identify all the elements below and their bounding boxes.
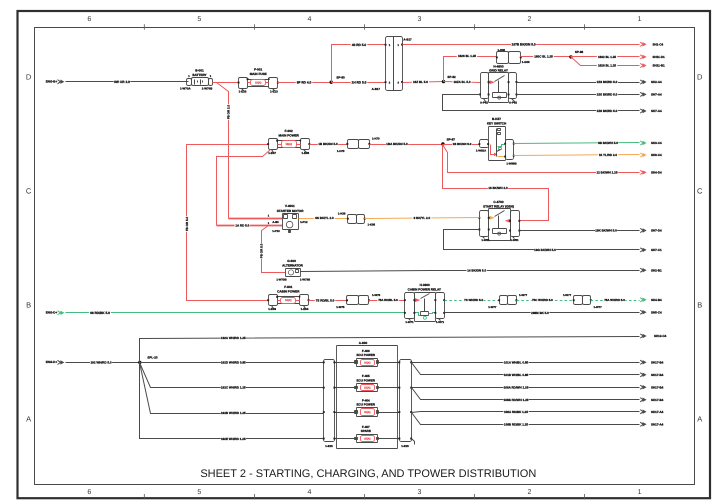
svg-text:SH17-B4: SH17-B4 bbox=[651, 385, 664, 389]
svg-text:192E WH/RD 1.25: 192E WH/RD 1.25 bbox=[221, 437, 246, 441]
svg-text:1-H30: 1-H30 bbox=[498, 48, 506, 52]
svg-text:1-K96: 1-K96 bbox=[338, 211, 346, 215]
svg-text:1H RD 5.0: 1H RD 5.0 bbox=[352, 80, 367, 84]
svg-text:15(A): 15(A) bbox=[364, 437, 370, 440]
svg-text:14 BK/GN 5.0: 14 BK/GN 5.0 bbox=[467, 269, 486, 273]
svg-text:ECU POWER: ECU POWER bbox=[357, 353, 376, 357]
svg-text:MAIN FUSE: MAIN FUSE bbox=[250, 72, 267, 76]
svg-text:3: 3 bbox=[417, 489, 421, 496]
svg-text:1-E13: 1-E13 bbox=[270, 90, 278, 94]
svg-text:1B BK/GN 5.0: 1B BK/GN 5.0 bbox=[318, 142, 338, 146]
svg-text:B-001: B-001 bbox=[195, 68, 204, 72]
svg-text:1E3 BK/RD 5.0: 1E3 BK/RD 5.0 bbox=[597, 80, 618, 84]
svg-text:6: 6 bbox=[87, 489, 91, 496]
svg-text:1-W70A: 1-W70A bbox=[180, 87, 192, 91]
svg-text:1-W77: 1-W77 bbox=[488, 305, 497, 309]
svg-text:SH7-A4: SH7-A4 bbox=[651, 93, 662, 97]
svg-text:192B WH/RD 1.25: 192B WH/RD 1.25 bbox=[221, 411, 246, 415]
svg-text:1-W73B: 1-W73B bbox=[276, 277, 286, 281]
svg-text:SH4-B4: SH4-B4 bbox=[651, 298, 662, 302]
svg-text:1-W92A: 1-W92A bbox=[476, 149, 486, 153]
svg-text:B-K57: B-K57 bbox=[492, 117, 501, 121]
svg-text:16Z BL 5.0: 16Z BL 5.0 bbox=[413, 80, 428, 84]
svg-text:101B WH/BL 0.85: 101B WH/BL 0.85 bbox=[504, 373, 529, 377]
svg-text:1: 1 bbox=[397, 44, 399, 47]
svg-text:SP-82: SP-82 bbox=[447, 75, 456, 79]
svg-text:ECU POWER: ECU POWER bbox=[357, 403, 376, 407]
svg-text:1: 1 bbox=[188, 75, 190, 78]
svg-text:D: D bbox=[26, 73, 32, 82]
svg-text:19K BK/WH 5.0: 19K BK/WH 5.0 bbox=[595, 229, 617, 233]
svg-text:1E0 BK/RD 5.0: 1E0 BK/RD 5.0 bbox=[597, 93, 618, 97]
svg-text:1-H70: 1-H70 bbox=[372, 137, 380, 141]
svg-text:15(A): 15(A) bbox=[285, 143, 292, 146]
svg-text:4: 4 bbox=[307, 16, 311, 23]
svg-text:SPARE: SPARE bbox=[361, 429, 371, 433]
svg-text:STARTER MOTOR: STARTER MOTOR bbox=[277, 209, 304, 213]
svg-text:SH9-C4: SH9-C4 bbox=[651, 153, 662, 157]
svg-text:16 BK/WH 2.0: 16 BK/WH 2.0 bbox=[488, 186, 508, 190]
svg-text:G-600: G-600 bbox=[287, 259, 296, 263]
svg-text:1-W51: 1-W51 bbox=[481, 238, 490, 242]
svg-text:9 BK/YL 2.0: 9 BK/YL 2.0 bbox=[414, 216, 431, 220]
svg-text:A-B17: A-B17 bbox=[372, 87, 381, 91]
svg-text:CABIN POWER RELAY: CABIN POWER RELAY bbox=[408, 287, 442, 291]
svg-text:1BA BK/GN 5.0: 1BA BK/GN 5.0 bbox=[386, 142, 408, 146]
svg-text:12 BK/WH 1.25: 12 BK/WH 1.25 bbox=[596, 171, 617, 175]
svg-text:1-H70: 1-H70 bbox=[337, 149, 345, 153]
svg-text:7S WH/RD 5.0: 7S WH/RD 5.0 bbox=[464, 298, 483, 302]
svg-text:1-E05: 1-E05 bbox=[301, 151, 309, 155]
svg-text:F-001: F-001 bbox=[254, 68, 262, 72]
svg-text:106B RD/WH 1.25: 106B RD/WH 1.25 bbox=[504, 398, 529, 402]
svg-text:1-E09: 1-E09 bbox=[268, 307, 276, 311]
svg-text:SH7-A4: SH7-A4 bbox=[651, 109, 662, 113]
svg-text:1E6 BK/RD 5.0: 1E6 BK/RD 5.0 bbox=[597, 109, 618, 113]
svg-text:SP-80: SP-80 bbox=[336, 75, 345, 79]
svg-text:1-E15: 1-E15 bbox=[325, 444, 333, 448]
svg-text:192A WH/RD 1.25: 192A WH/RD 1.25 bbox=[221, 336, 246, 340]
svg-text:15(A): 15(A) bbox=[364, 387, 370, 390]
svg-text:40 RD 5.0: 40 RD 5.0 bbox=[352, 43, 367, 47]
svg-text:1-W51: 1-W51 bbox=[510, 238, 519, 242]
svg-text:PB OR 5.0: PB OR 5.0 bbox=[259, 243, 263, 258]
svg-text:SHEET 2 - STARTING, CHARGING,: SHEET 2 - STARTING, CHARGING, AND TPOWER… bbox=[200, 468, 536, 480]
svg-text:192C WH/RD 1.25: 192C WH/RD 1.25 bbox=[221, 386, 246, 390]
svg-text:SH17-B4: SH17-B4 bbox=[651, 373, 664, 377]
svg-text:15(A): 15(A) bbox=[364, 411, 370, 414]
svg-text:A-800: A-800 bbox=[359, 341, 368, 345]
svg-text:SH11-D1: SH11-D1 bbox=[653, 55, 666, 59]
svg-text:BATTERY: BATTERY bbox=[192, 73, 207, 77]
svg-text:C: C bbox=[26, 187, 32, 196]
svg-text:1: 1 bbox=[638, 16, 642, 23]
svg-text:SH4-D4: SH4-D4 bbox=[651, 171, 662, 175]
svg-text:1-E04: 1-E04 bbox=[301, 307, 309, 311]
svg-text:15(A): 15(A) bbox=[285, 299, 292, 302]
svg-text:3: 3 bbox=[417, 16, 421, 23]
svg-text:START RELAY (GEN): START RELAY (GEN) bbox=[483, 204, 514, 208]
svg-text:ENG-D+: ENG-D+ bbox=[46, 360, 58, 364]
svg-text:288M BK 5.0: 288M BK 5.0 bbox=[531, 311, 549, 315]
svg-text:GRID RELAY: GRID RELAY bbox=[489, 69, 509, 73]
svg-text:SH17-B4: SH17-B4 bbox=[651, 360, 664, 364]
svg-text:A-B17: A-B17 bbox=[403, 38, 412, 42]
svg-text:9S BK/YL 2.0: 9S BK/YL 2.0 bbox=[315, 216, 334, 220]
svg-text:SH7-C1: SH7-C1 bbox=[651, 248, 662, 252]
svg-text:19G BK/WH 5.0: 19G BK/WH 5.0 bbox=[534, 248, 556, 252]
svg-text:FB OR 5.0: FB OR 5.0 bbox=[185, 217, 189, 232]
svg-text:2: 2 bbox=[528, 489, 532, 496]
svg-text:ENG-B+: ENG-B+ bbox=[46, 80, 58, 84]
svg-text:SH2-A4: SH2-A4 bbox=[651, 80, 662, 84]
svg-text:A-B6: A-B6 bbox=[272, 221, 279, 224]
svg-text:1-W75: 1-W75 bbox=[336, 305, 345, 309]
svg-text:15(A): 15(A) bbox=[255, 82, 262, 85]
svg-text:V-4001: V-4001 bbox=[285, 204, 295, 208]
svg-text:1A RD 5.0: 1A RD 5.0 bbox=[235, 224, 249, 228]
svg-text:6: 6 bbox=[87, 16, 91, 23]
svg-text:SP-87: SP-87 bbox=[447, 137, 456, 141]
svg-text:192 WH/RD 5.0: 192 WH/RD 5.0 bbox=[90, 361, 111, 365]
svg-text:1-W98B: 1-W98B bbox=[506, 161, 516, 165]
svg-text:75C WH/RD 5.0: 75C WH/RD 5.0 bbox=[532, 298, 553, 302]
svg-text:8F RD 4.0: 8F RD 4.0 bbox=[297, 80, 312, 84]
svg-text:SH12-C4: SH12-C4 bbox=[654, 334, 667, 338]
svg-text:1-W70B: 1-W70B bbox=[202, 87, 213, 91]
svg-text:A: A bbox=[26, 415, 31, 424]
svg-text:SH2-B1: SH2-B1 bbox=[651, 268, 662, 272]
svg-text:1-W77: 1-W77 bbox=[594, 305, 603, 309]
svg-text:1: 1 bbox=[638, 489, 642, 496]
svg-text:1-W73B: 1-W73B bbox=[300, 277, 310, 281]
svg-text:4: 4 bbox=[307, 489, 311, 496]
svg-text:3: 3 bbox=[397, 81, 399, 84]
svg-text:1632 BL 1.25: 1632 BL 1.25 bbox=[598, 55, 616, 59]
svg-text:1-W75: 1-W75 bbox=[372, 293, 381, 297]
svg-text:SH17-A4: SH17-A4 bbox=[651, 422, 664, 426]
svg-text:1B BK/GN 5.0: 1B BK/GN 5.0 bbox=[453, 142, 472, 146]
svg-text:C: C bbox=[697, 187, 703, 196]
svg-text:ENG-D+: ENG-D+ bbox=[46, 311, 58, 315]
svg-text:MAIN POWER: MAIN POWER bbox=[278, 134, 299, 138]
svg-text:ALTERNATOR: ALTERNATOR bbox=[282, 264, 304, 268]
svg-text:A-P62: A-P62 bbox=[509, 101, 517, 105]
svg-text:SPL-20: SPL-20 bbox=[147, 356, 158, 360]
svg-text:D: D bbox=[697, 73, 703, 82]
svg-text:SH7-D4: SH7-D4 bbox=[651, 229, 662, 233]
svg-text:61 YL/RD 2.0: 61 YL/RD 2.0 bbox=[599, 153, 617, 157]
svg-text:2: 2 bbox=[528, 16, 532, 23]
svg-text:SH17-B4: SH17-B4 bbox=[651, 398, 664, 402]
svg-text:1-P12: 1-P12 bbox=[300, 220, 308, 224]
svg-text:160C BL 1.25: 160C BL 1.25 bbox=[534, 55, 553, 59]
svg-text:H-3800: H-3800 bbox=[420, 283, 430, 287]
svg-text:1-G06: 1-G06 bbox=[522, 60, 530, 64]
svg-text:A: A bbox=[697, 415, 702, 424]
svg-text:15(A): 15(A) bbox=[364, 361, 370, 364]
svg-text:CABIN POWER: CABIN POWER bbox=[277, 290, 300, 294]
svg-text:FB OR 2.0: FB OR 2.0 bbox=[227, 105, 231, 120]
svg-text:C-4700: C-4700 bbox=[493, 200, 503, 204]
svg-text:5: 5 bbox=[197, 16, 201, 23]
svg-text:75A RD/BL 5.0: 75A RD/BL 5.0 bbox=[378, 298, 398, 302]
svg-text:1-E07: 1-E07 bbox=[268, 151, 276, 155]
svg-text:B: B bbox=[26, 301, 31, 310]
svg-text:F-602: F-602 bbox=[285, 129, 293, 133]
svg-text:A-P62: A-P62 bbox=[480, 101, 488, 105]
svg-text:101A WH/BL 0.85: 101A WH/BL 0.85 bbox=[504, 360, 529, 364]
svg-text:SH1-C4: SH1-C4 bbox=[653, 42, 664, 46]
svg-text:1-P13: 1-P13 bbox=[272, 229, 280, 233]
svg-text:1-K96: 1-K96 bbox=[368, 222, 376, 226]
svg-text:SH3-C4: SH3-C4 bbox=[651, 141, 662, 145]
svg-text:98 RD/BK 5.0: 98 RD/BK 5.0 bbox=[90, 311, 110, 315]
svg-text:16ZA BL 5.0: 16ZA BL 5.0 bbox=[453, 80, 470, 84]
svg-text:1-E33: 1-E33 bbox=[239, 90, 247, 94]
svg-text:SH11-B1: SH11-B1 bbox=[653, 64, 666, 68]
svg-text:SP-86: SP-86 bbox=[575, 50, 584, 54]
svg-text:7S RD/BL 5.0: 7S RD/BL 5.0 bbox=[316, 298, 335, 302]
svg-text:106A RD/WH 1.25: 106A RD/WH 1.25 bbox=[504, 385, 529, 389]
svg-text:KEY SWITCH: KEY SWITCH bbox=[487, 122, 507, 126]
svg-text:1-E15: 1-E15 bbox=[401, 444, 409, 448]
svg-text:F-801: F-801 bbox=[284, 285, 292, 289]
svg-text:B: B bbox=[697, 301, 702, 310]
svg-text:1626 BL 1.25: 1626 BL 1.25 bbox=[458, 54, 476, 58]
svg-text:1-W77: 1-W77 bbox=[563, 293, 572, 297]
svg-text:1: 1 bbox=[268, 215, 270, 218]
svg-text:3: 3 bbox=[389, 81, 391, 84]
svg-text:192D WH/RD 0.85: 192D WH/RD 0.85 bbox=[221, 361, 246, 365]
svg-text:1: 1 bbox=[389, 44, 391, 47]
svg-text:167B BK/GN 5.0: 167B BK/GN 5.0 bbox=[512, 43, 536, 47]
svg-text:0W OR 2.0: 0W OR 2.0 bbox=[114, 80, 130, 84]
svg-text:SH5-C4: SH5-C4 bbox=[651, 310, 662, 314]
svg-text:1: 1 bbox=[210, 75, 212, 78]
svg-text:108B RD/BK 1.25: 108B RD/BK 1.25 bbox=[504, 422, 529, 426]
svg-text:1626 BL 1.25: 1626 BL 1.25 bbox=[598, 64, 616, 68]
svg-text:75A WH/RD 5.0: 75A WH/RD 5.0 bbox=[604, 298, 625, 302]
svg-text:5: 5 bbox=[197, 489, 201, 496]
svg-text:1-W77: 1-W77 bbox=[519, 293, 528, 297]
svg-text:9B BK/WH 5.0: 9B BK/WH 5.0 bbox=[598, 141, 618, 145]
svg-text:ECU POWER: ECU POWER bbox=[357, 378, 376, 382]
svg-text:108A RD/BK 1.25: 108A RD/BK 1.25 bbox=[504, 410, 528, 414]
svg-text:SH17-A4: SH17-A4 bbox=[651, 410, 664, 414]
